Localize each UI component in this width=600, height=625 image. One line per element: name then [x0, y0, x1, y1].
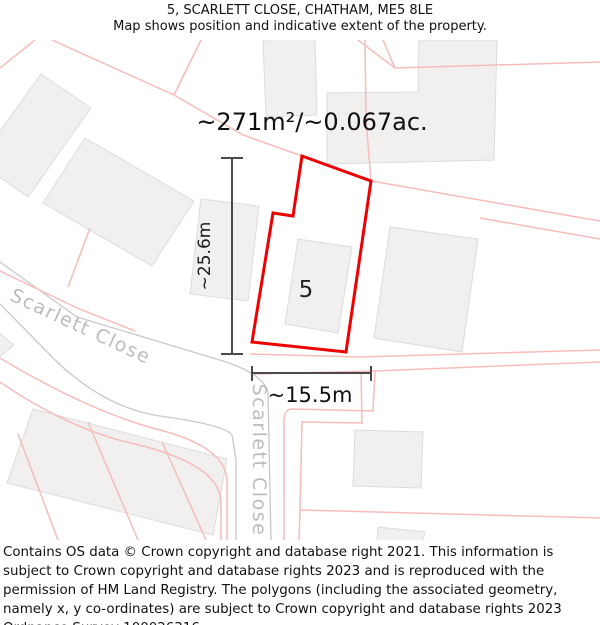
parcel-line: [68, 228, 90, 287]
parcel-line: [300, 510, 600, 518]
building: [353, 430, 423, 488]
building-terrace: [7, 409, 227, 535]
area-label: ~271m²/~0.067ac.: [196, 108, 427, 136]
parcel-line: [371, 181, 600, 221]
page-subtitle: Map shows position and indicative extent…: [0, 19, 600, 35]
height-measure-label: ~25.6m: [195, 222, 215, 291]
parcel-line: [250, 350, 600, 357]
copyright-notice: Contains OS data © Crown copyright and d…: [0, 540, 600, 625]
parcel-line: [0, 40, 35, 68]
building: [0, 332, 14, 358]
parcel-line: [174, 40, 202, 95]
width-measure-label: ~15.5m: [268, 383, 353, 407]
plot-number-label: 5: [299, 277, 314, 303]
parcel-line: [480, 218, 600, 239]
page-title: 5, SCARLETT CLOSE, CHATHAM, ME5 8LE: [0, 3, 600, 19]
map-svg: ~25.6m ~15.5m ~271m²/~0.067ac. 5 Scarlet…: [0, 40, 600, 540]
building: [377, 527, 425, 540]
street-label-scarlett-close-vertical: Scarlett Close: [248, 384, 270, 537]
map-canvas: ~25.6m ~15.5m ~271m²/~0.067ac. 5 Scarlet…: [0, 40, 600, 540]
building: [43, 138, 194, 266]
building: [327, 40, 497, 164]
building: [374, 227, 478, 352]
building: [263, 40, 317, 117]
street-label-scarlett-close-diagonal: Scarlett Close: [7, 284, 155, 368]
building-plot-5: [285, 239, 352, 333]
property-map-page: 5, SCARLETT CLOSE, CHATHAM, ME5 8LE Map …: [0, 0, 600, 625]
page-header: 5, SCARLETT CLOSE, CHATHAM, ME5 8LE Map …: [0, 0, 600, 40]
